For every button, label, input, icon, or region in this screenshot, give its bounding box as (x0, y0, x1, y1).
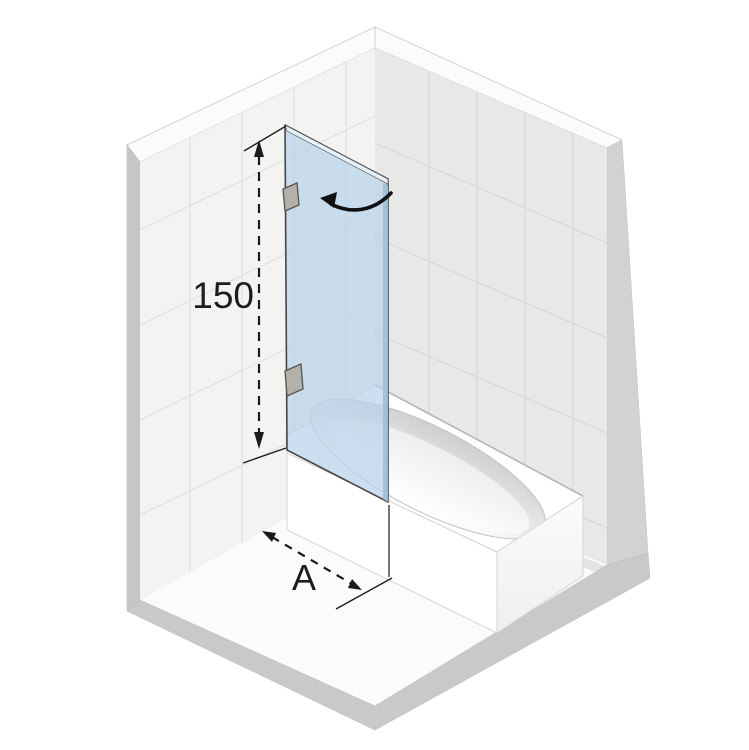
glass-thickness-edge (383, 183, 388, 502)
product-diagram: 150 A (0, 0, 749, 750)
glass-panel (285, 125, 388, 502)
bath-screen-isometric-scene: 150 A (0, 0, 749, 750)
width-dimension-label: A (292, 557, 316, 598)
glass-pane (285, 125, 388, 502)
height-dimension-label: 150 (192, 275, 254, 316)
left-wall-edge (127, 145, 140, 610)
